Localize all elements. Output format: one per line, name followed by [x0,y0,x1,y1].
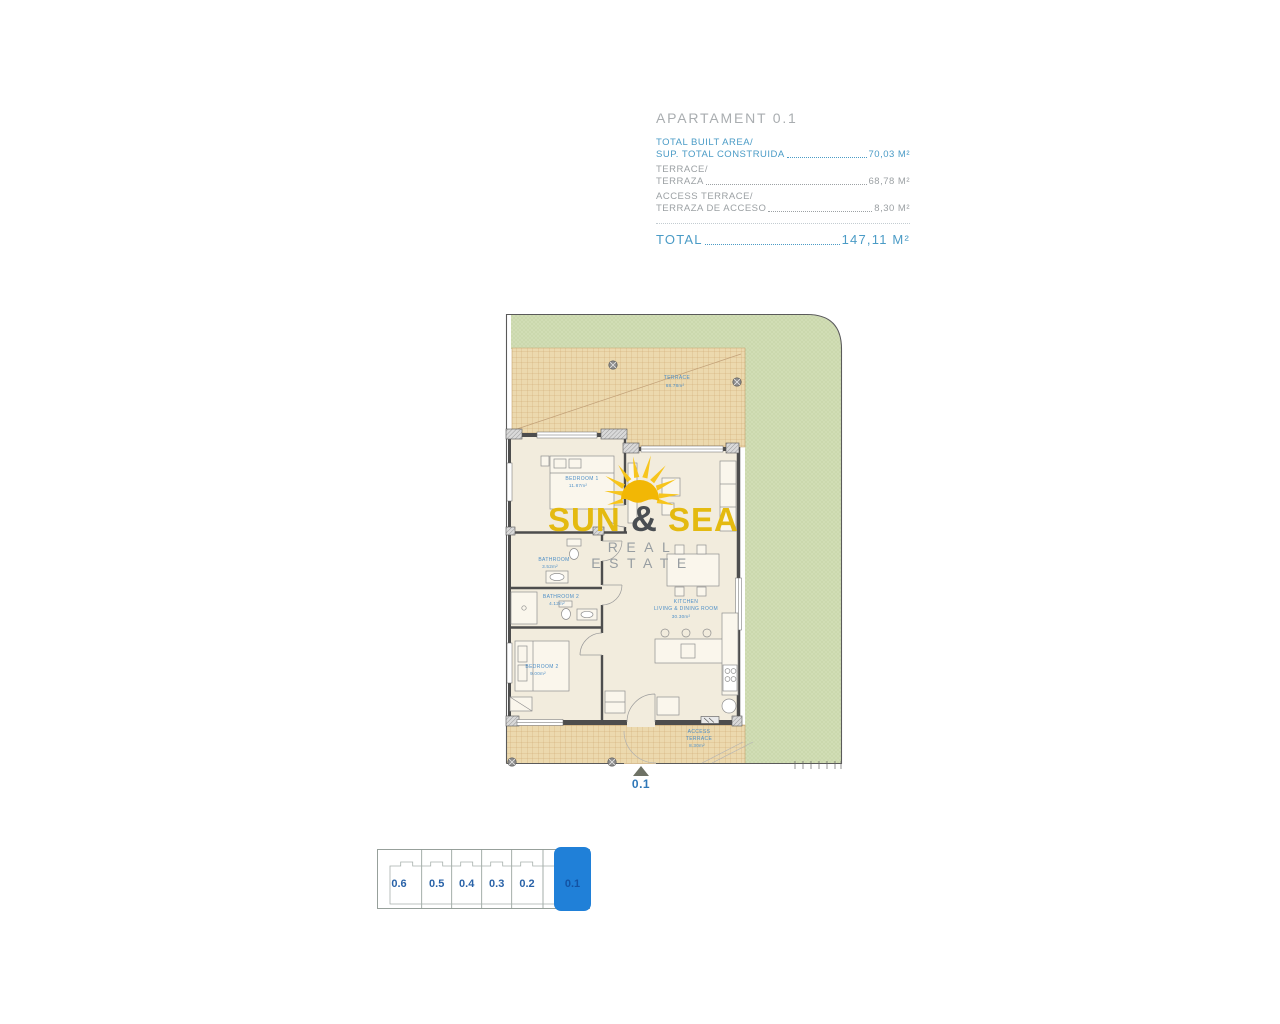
dot-leader [787,157,867,158]
unit-tab-0-5[interactable]: 0.5 [429,878,444,890]
area-row-value: 68,78 M² [869,176,911,188]
room-label-terrace: TERRACE [664,375,691,381]
area-row-label-es: SUP. TOTAL CONSTRUIDA [656,149,785,161]
unit-tab-0-6[interactable]: 0.6 [391,878,406,890]
brand-tagline: REAL ESTATE [554,539,732,571]
total-label: TOTAL [656,232,703,247]
area-row-label-en: TOTAL BUILT AREA/ [656,137,910,149]
brand-word-sea: SEA [668,501,739,538]
room-label-kitchen: KITCHEN [674,599,698,605]
brand-word-sun: SUN [548,501,621,538]
brand-logo: SUN & SEA REAL ESTATE [548,452,732,571]
unit-tab-0-4[interactable]: 0.4 [459,878,475,890]
brand-name: SUN & SEA [548,504,732,535]
room-area-kitchen: 30.30m² [672,614,691,619]
room-label-kitchen-2: LIVING & DINING ROOM [654,606,718,612]
total-row: TOTAL 147,11 M² [656,223,910,247]
unit-tab-0-1[interactable]: 0.1 [565,878,580,890]
room-label-bathroom2: BATHROOM 2 [543,594,579,600]
dot-leader [706,184,867,185]
room-label-bedroom2: BEDROOM 2 [525,664,558,670]
svg-text:0.3: 0.3 [489,878,504,890]
area-row-label-en: TERRACE/ [656,164,910,176]
room-area-terrace: 68.78m² [666,383,685,388]
area-row-label-es: TERRAZA [656,176,704,188]
room-area-access-terrace: 8.30m² [689,743,705,748]
page-title: APARTAMENT 0.1 [656,110,910,126]
area-row-terrace: TERRACE/ TERRAZA 68,78 M² [656,164,910,187]
unit-selector: 0.6 0.5 0.4 0.3 0.2 0.1 [377,847,591,911]
room-area-bedroom2: 9.00m² [530,671,546,676]
area-row-value: 70,03 M² [869,149,911,161]
svg-text:0.2: 0.2 [519,878,534,890]
unit-tab-0-3[interactable]: 0.3 [489,878,504,890]
svg-text:0.6: 0.6 [391,878,406,890]
brand-ampersand: & [631,498,658,539]
room-area-bathroom2: 4.12m² [549,601,565,606]
area-row-value: 8,30 M² [874,203,910,215]
unit-tab-0-2[interactable]: 0.2 [519,878,534,890]
area-row-label-en: ACCESS TERRACE/ [656,191,910,203]
area-row-label-es: TERRAZA DE ACCESO [656,203,766,215]
svg-text:0.4: 0.4 [459,878,475,890]
area-row-built: TOTAL BUILT AREA/ SUP. TOTAL CONSTRUIDA … [656,137,910,160]
dot-leader [705,244,840,245]
entrance-arrow-icon [633,766,649,776]
dot-leader [768,211,872,212]
area-row-access-terrace: ACCESS TERRACE/ TERRAZA DE ACCESO 8,30 M… [656,191,910,214]
room-label-access-terrace: ACCESS [688,729,711,735]
svg-text:0.5: 0.5 [429,878,444,890]
svg-text:0.1: 0.1 [565,878,580,890]
total-value: 147,11 M² [842,232,910,247]
room-label-access-terrace-2: TERRACE [686,736,713,742]
entrance-label: 0.1 [623,777,659,791]
entrance-marker: 0.1 [623,766,659,791]
apartment-summary: APARTAMENT 0.1 TOTAL BUILT AREA/ SUP. TO… [656,110,910,247]
